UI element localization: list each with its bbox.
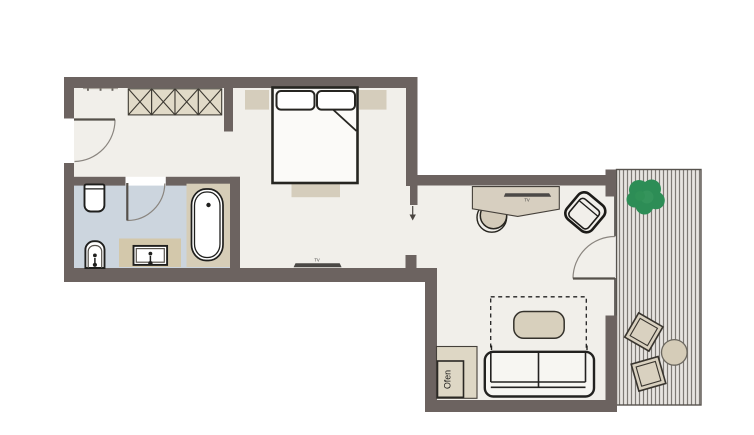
svg-text:TV: TV — [314, 257, 320, 262]
svg-text:Ofen: Ofen — [443, 370, 453, 389]
svg-text:TV: TV — [524, 198, 530, 203]
